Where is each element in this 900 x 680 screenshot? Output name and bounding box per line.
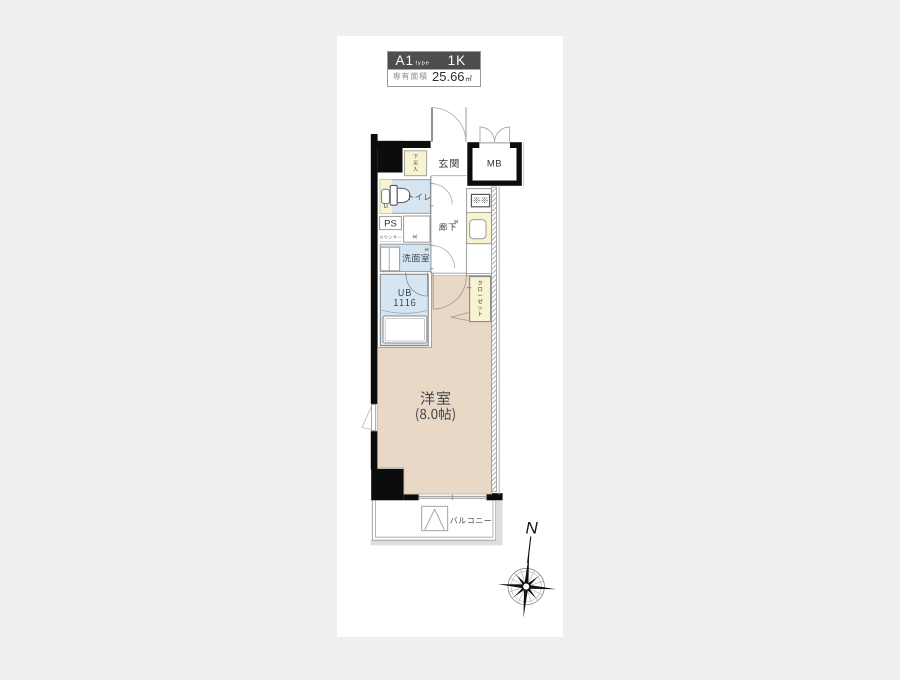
svg-text:1K: 1K: [448, 53, 467, 68]
svg-text:N: N: [526, 519, 539, 538]
svg-text:MB: MB: [487, 159, 502, 170]
svg-text:type: type: [416, 60, 430, 66]
svg-text:25.66: 25.66: [432, 69, 465, 84]
svg-text:A1: A1: [396, 53, 415, 68]
svg-text:PS: PS: [384, 219, 397, 230]
